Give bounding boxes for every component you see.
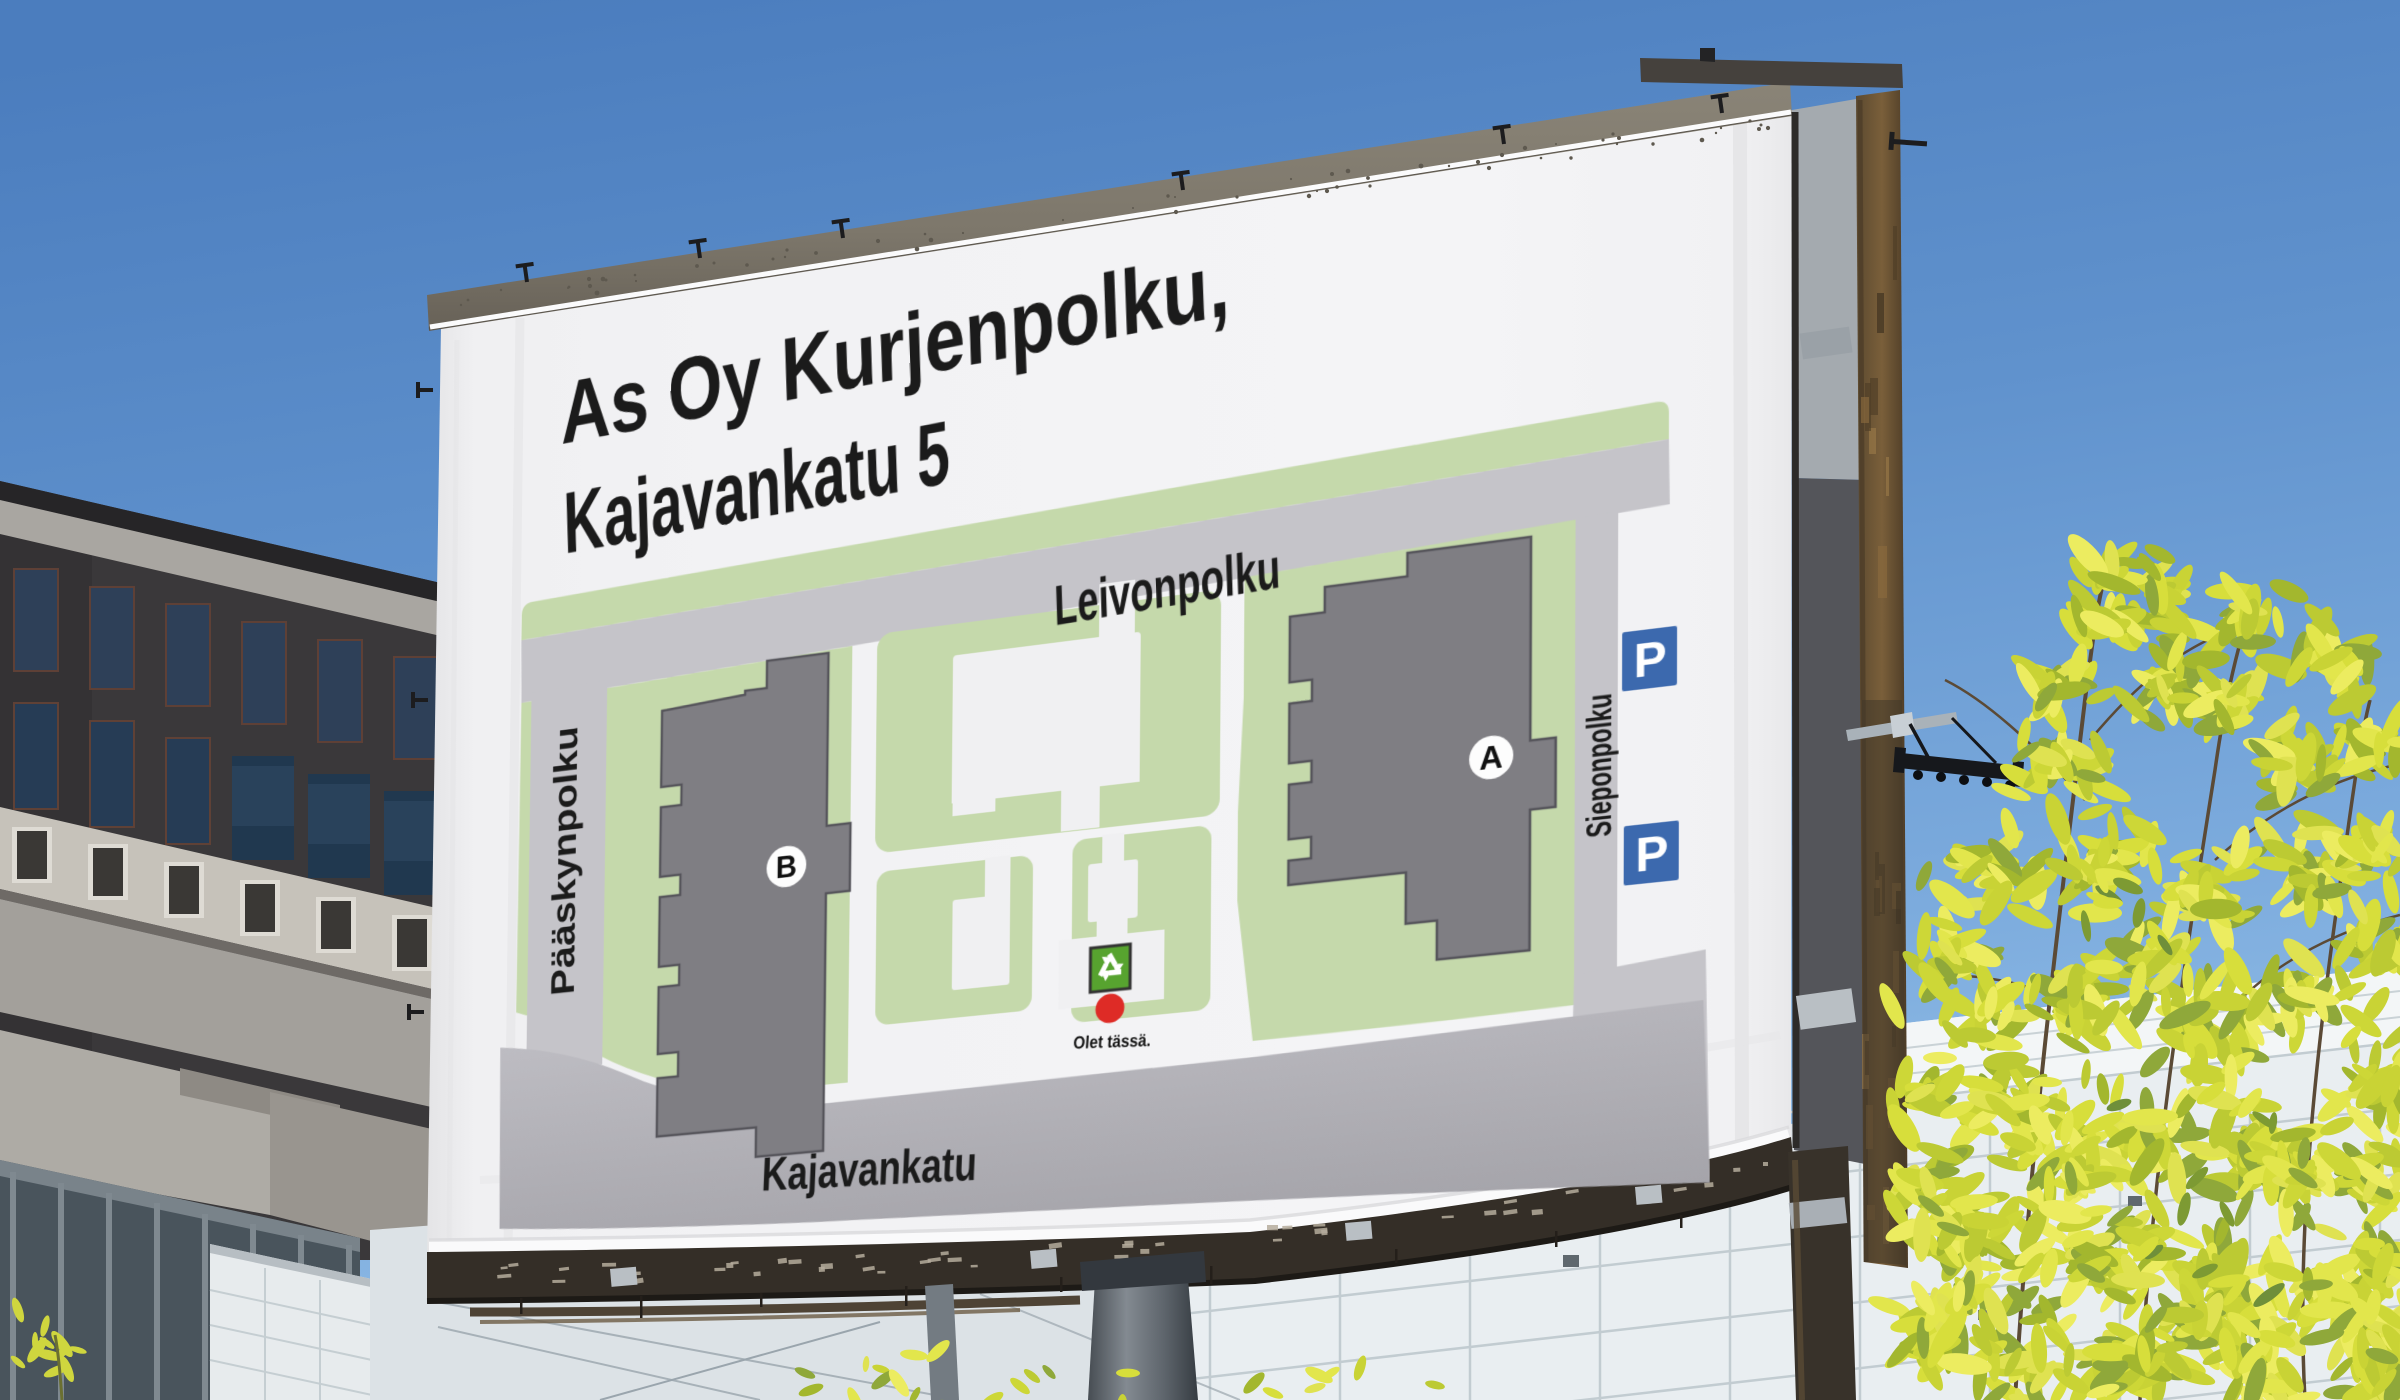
svg-text:Sieponpolku: Sieponpolku bbox=[1580, 692, 1619, 840]
svg-text:A: A bbox=[1479, 739, 1503, 777]
svg-text:B: B bbox=[776, 849, 798, 885]
svg-text:P: P bbox=[1633, 630, 1666, 688]
svg-text:P: P bbox=[1635, 825, 1668, 883]
svg-text:Olet tässä.: Olet tässä. bbox=[1073, 1031, 1152, 1053]
svg-text:Pääskynpolku: Pääskynpolku bbox=[545, 725, 585, 998]
svg-text:Kajavankatu: Kajavankatu bbox=[761, 1137, 979, 1202]
